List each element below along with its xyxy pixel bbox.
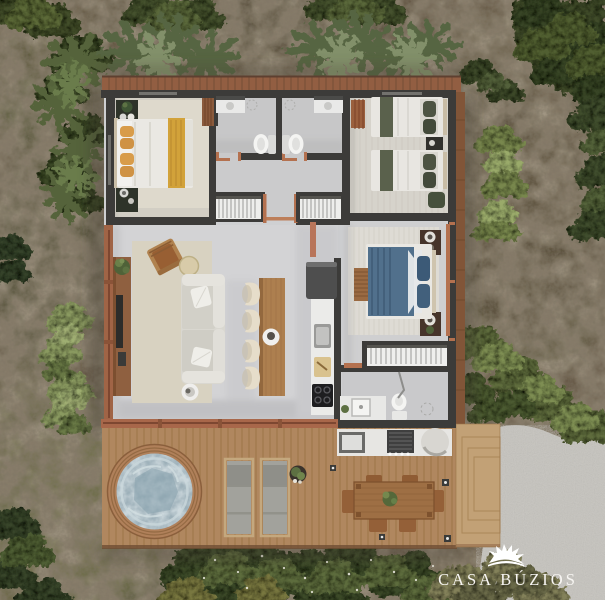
svg-text:CASA BÚZIOS: CASA BÚZIOS (438, 570, 578, 589)
